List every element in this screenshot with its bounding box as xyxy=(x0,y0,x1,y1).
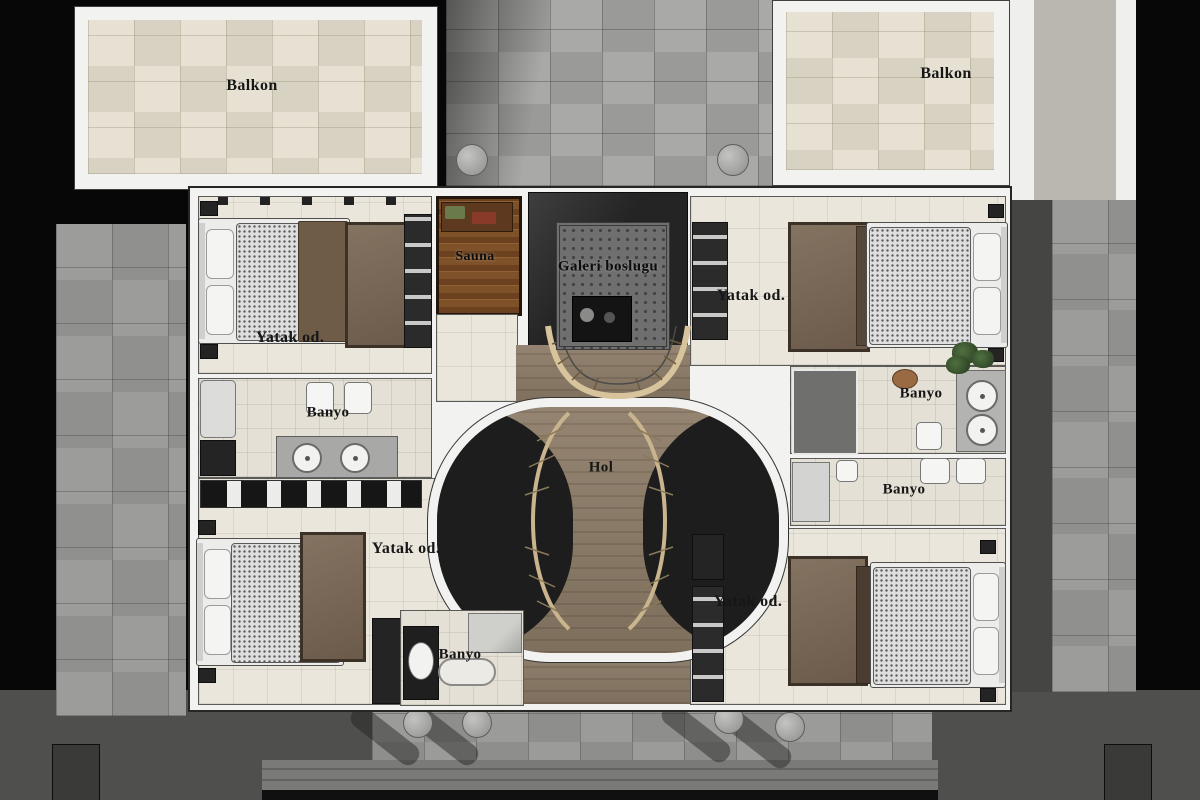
sauna-towel-green xyxy=(445,206,465,219)
sink-basin xyxy=(920,458,950,484)
sink xyxy=(966,380,998,412)
nightstand xyxy=(988,204,1004,218)
gallery-table-decor xyxy=(580,308,594,322)
right-side-roof xyxy=(1052,198,1136,692)
dresser-bottom-left xyxy=(372,618,402,704)
nightstand xyxy=(980,688,996,702)
label-gallery-void: Galeri boslugu xyxy=(558,259,658,276)
wardrobe-top-left xyxy=(404,214,432,348)
headboard xyxy=(197,543,203,661)
label-bedroom-bottom-left: Yatak od. xyxy=(372,540,441,558)
balcony-left-floor xyxy=(88,20,422,174)
plant xyxy=(946,356,970,374)
label-balcony-left: Balkon xyxy=(226,77,277,95)
pillow xyxy=(204,549,231,599)
sauna-towel-red xyxy=(472,212,496,224)
nightstand xyxy=(200,201,218,216)
headboard xyxy=(1001,227,1007,343)
terrace-column xyxy=(717,144,749,176)
dresser-bottom-right xyxy=(692,534,724,580)
bed-blanket xyxy=(298,221,348,342)
top-right-roof-strip xyxy=(1034,0,1116,200)
sink xyxy=(340,443,370,473)
mattress xyxy=(869,227,971,345)
mattress xyxy=(873,567,971,685)
label-bedroom-bottom-right: Yatak od. xyxy=(714,593,783,611)
floor-plan-canvas: Balkon Balkon Sauna Galeri boslugu Yatak… xyxy=(0,0,1200,800)
label-bathroom-bottom: Banyo xyxy=(439,647,482,664)
nightstand xyxy=(198,520,216,535)
label-bedroom-top-right: Yatak od. xyxy=(717,287,786,305)
pillow xyxy=(973,627,999,675)
wardrobe-top-right xyxy=(692,222,728,340)
toilet xyxy=(916,422,942,450)
washer xyxy=(200,440,236,476)
pillow xyxy=(206,285,234,335)
bed-bottom-right xyxy=(870,562,1006,688)
column-base-right xyxy=(1104,744,1152,800)
label-hall: Hol xyxy=(589,460,614,477)
terrace-column xyxy=(456,144,488,176)
vanity-sink xyxy=(408,642,434,680)
bottom-steps xyxy=(262,760,938,792)
shower-glass xyxy=(792,369,858,455)
nightstand xyxy=(200,344,218,359)
headboard xyxy=(199,223,205,339)
corridor-left xyxy=(436,314,518,402)
pillow xyxy=(973,287,1001,335)
balcony-right-floor xyxy=(786,12,994,170)
sink xyxy=(966,414,998,446)
wall-shelf-row xyxy=(218,197,408,205)
rug-bottom-left xyxy=(300,532,366,662)
label-bathroom-right-lower: Banyo xyxy=(883,482,926,499)
column-base-left xyxy=(52,744,100,800)
shower-small xyxy=(792,462,830,522)
label-bathroom-right-upper: Banyo xyxy=(900,386,943,403)
sink-basin xyxy=(956,458,986,484)
label-bathroom-left: Banyo xyxy=(307,405,350,422)
plant xyxy=(972,350,994,368)
left-side-roof xyxy=(56,224,186,716)
pillow xyxy=(973,233,1001,281)
right-side-shadow xyxy=(1008,198,1052,692)
sink xyxy=(292,443,322,473)
nightstand xyxy=(980,540,996,554)
porch-column xyxy=(462,708,492,738)
bottom-steps-edge xyxy=(262,790,938,800)
gallery-table-decor xyxy=(604,312,615,323)
bed-top-right xyxy=(866,222,1008,348)
headboard xyxy=(999,567,1005,683)
porch-column xyxy=(775,712,805,742)
toilet xyxy=(836,460,858,482)
nightstand xyxy=(198,668,216,683)
label-bedroom-top-left: Yatak od. xyxy=(256,329,325,347)
porch-column xyxy=(403,708,433,738)
shower-left xyxy=(200,380,236,438)
pillow xyxy=(204,605,231,655)
pillow xyxy=(973,573,999,621)
label-balcony-right: Balkon xyxy=(920,65,971,83)
pillow xyxy=(206,229,234,279)
dresser-row xyxy=(200,480,422,508)
top-right-wall-strip2 xyxy=(1116,0,1136,200)
label-sauna: Sauna xyxy=(455,249,494,265)
